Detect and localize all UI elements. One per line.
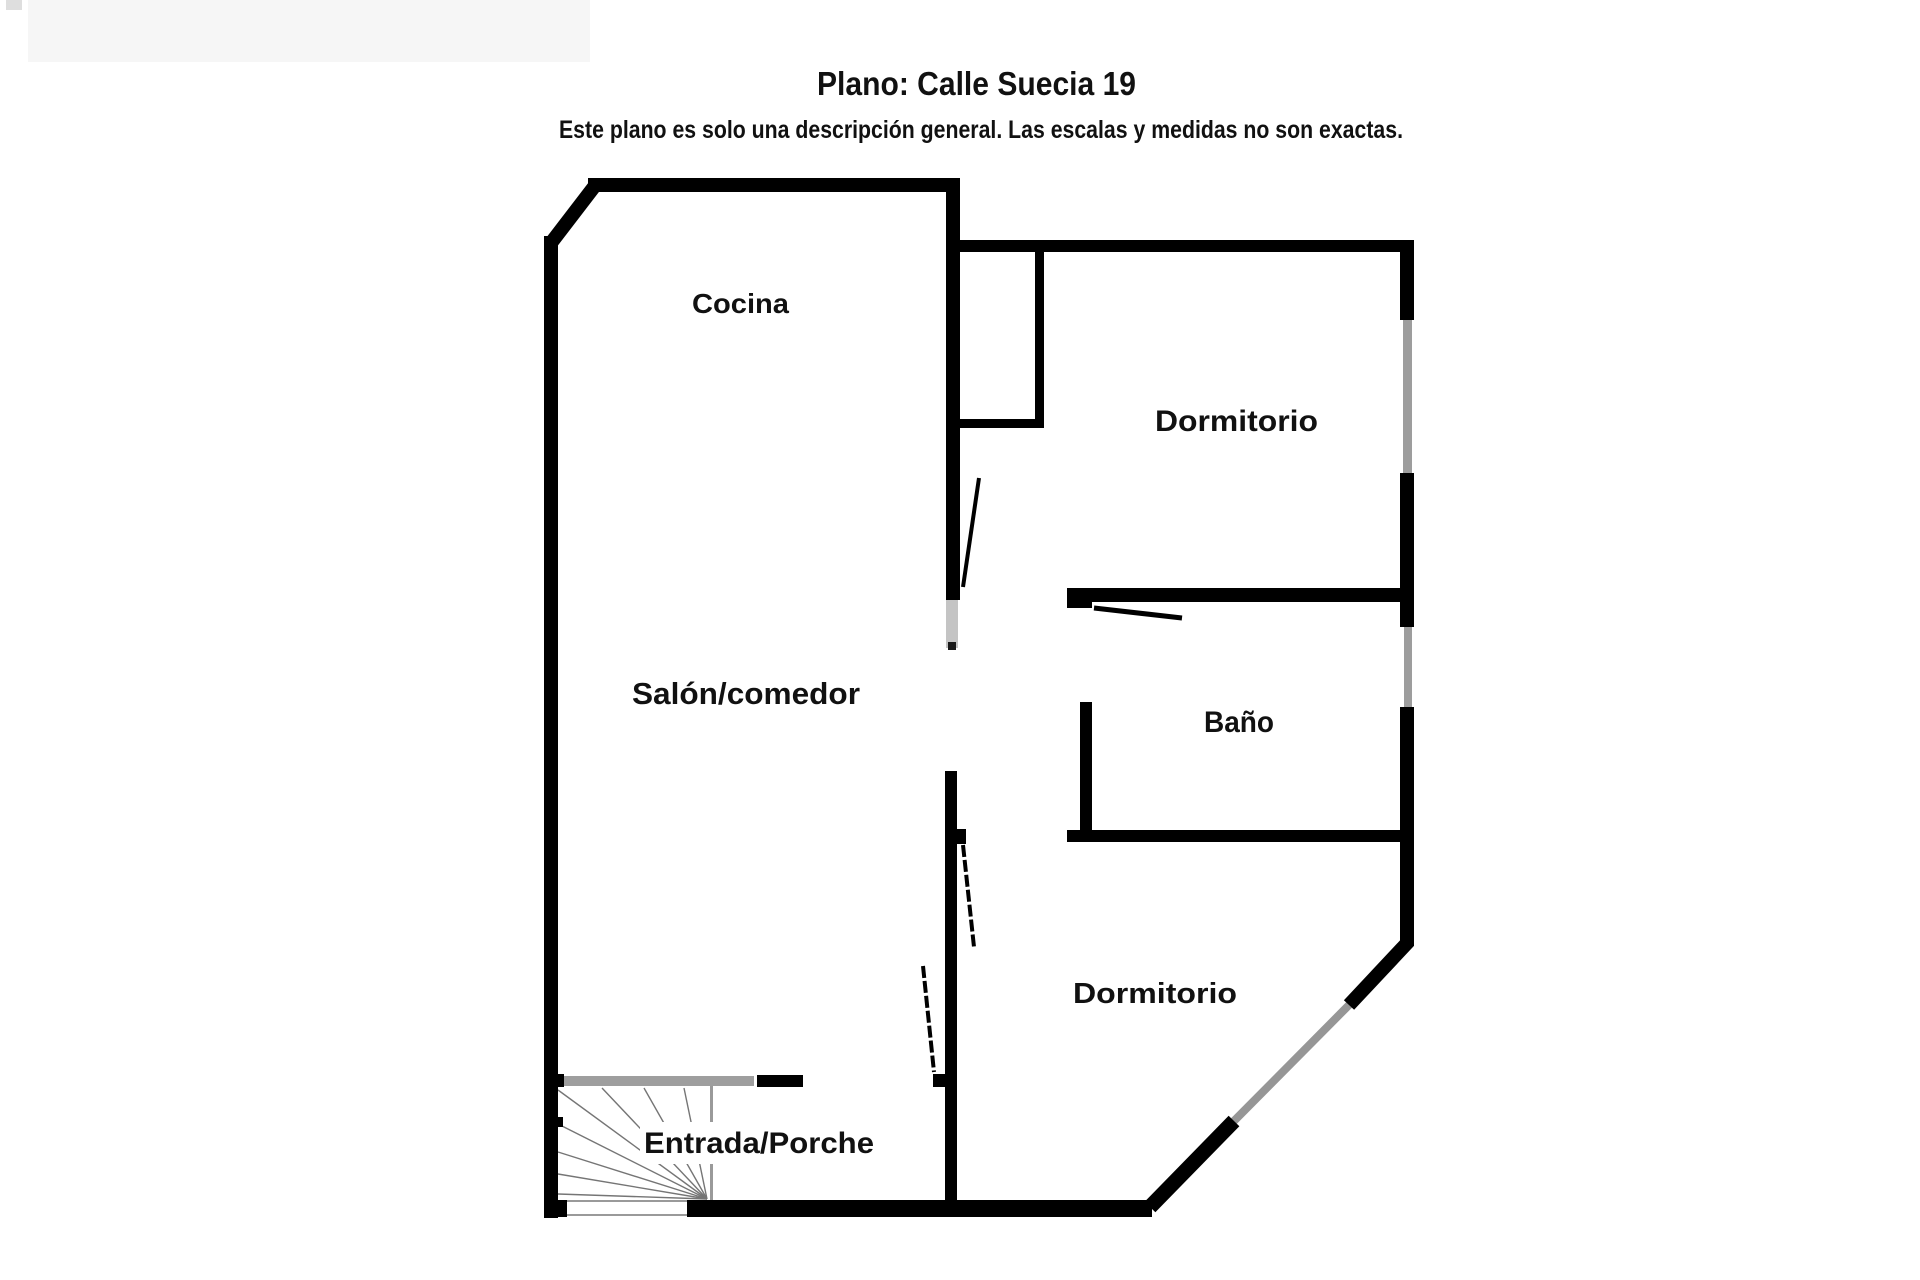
svg-text:Dormitorio: Dormitorio [1073, 978, 1237, 1010]
svg-text:Entrada/Porche: Entrada/Porche [644, 1127, 874, 1160]
svg-text:Baño: Baño [1204, 706, 1274, 739]
svg-text:Dormitorio: Dormitorio [1155, 405, 1318, 438]
svg-text:Este plano es solo una descrip: Este plano es solo una descripción gener… [559, 116, 1403, 144]
svg-text:Plano: Calle Suecia 19: Plano: Calle Suecia 19 [817, 65, 1136, 102]
svg-text:Cocina: Cocina [692, 288, 789, 319]
svg-text:Salón/comedor: Salón/comedor [632, 676, 860, 711]
